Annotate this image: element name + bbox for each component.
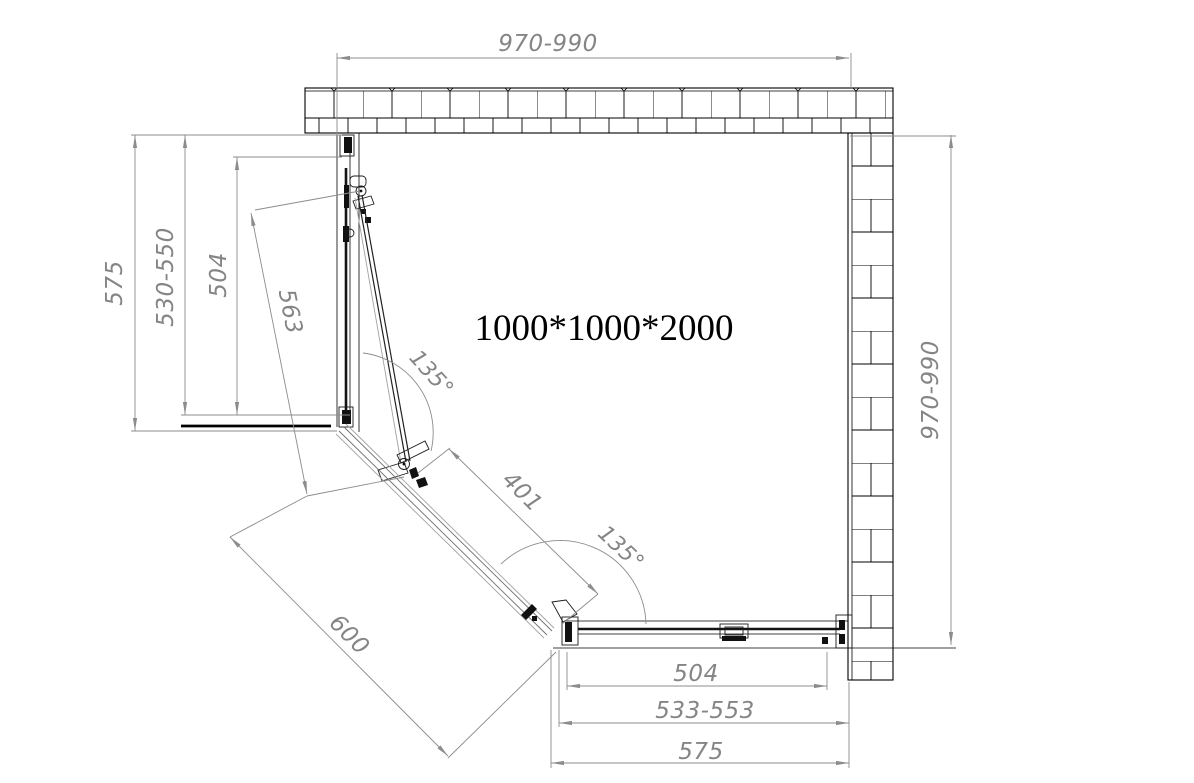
dim-bottom-adjust-range: 533-553 — [655, 698, 755, 724]
door-closed-position — [336, 424, 554, 638]
dim-left-total: 575 — [102, 260, 128, 305]
dim-diagonal-total: 600 — [324, 610, 374, 660]
angle-label-left: 135° — [404, 346, 458, 402]
dim-door-width: 563 — [273, 287, 307, 337]
dim-bottom-glass: 504 — [673, 661, 718, 687]
dim-right-depth: 970-990 — [918, 340, 944, 440]
product-size-label: 1000*1000*2000 — [475, 308, 734, 349]
top-wall — [305, 88, 893, 133]
shower-enclosure-plan: 970-990 970-990 575 530-550 504 563 401 … — [0, 0, 1194, 783]
dim-left-adjust-range: 530-550 — [153, 227, 179, 327]
drawing-canvas: 970-990 970-990 575 530-550 504 563 401 … — [0, 0, 1194, 783]
left-fixed-panel — [337, 133, 374, 432]
dim-left-glass: 504 — [206, 252, 232, 297]
dim-bottom-total: 575 — [678, 739, 723, 765]
dimension-lines — [131, 53, 956, 768]
angle-label-right: 135° — [593, 521, 649, 575]
bottom-fixed-panel — [552, 600, 956, 648]
right-wall — [848, 133, 893, 680]
dim-diagonal-opening: 401 — [497, 467, 547, 517]
dimension-labels: 970-990 970-990 575 530-550 504 563 401 … — [102, 31, 944, 765]
dim-top-width: 970-990 — [498, 31, 598, 57]
